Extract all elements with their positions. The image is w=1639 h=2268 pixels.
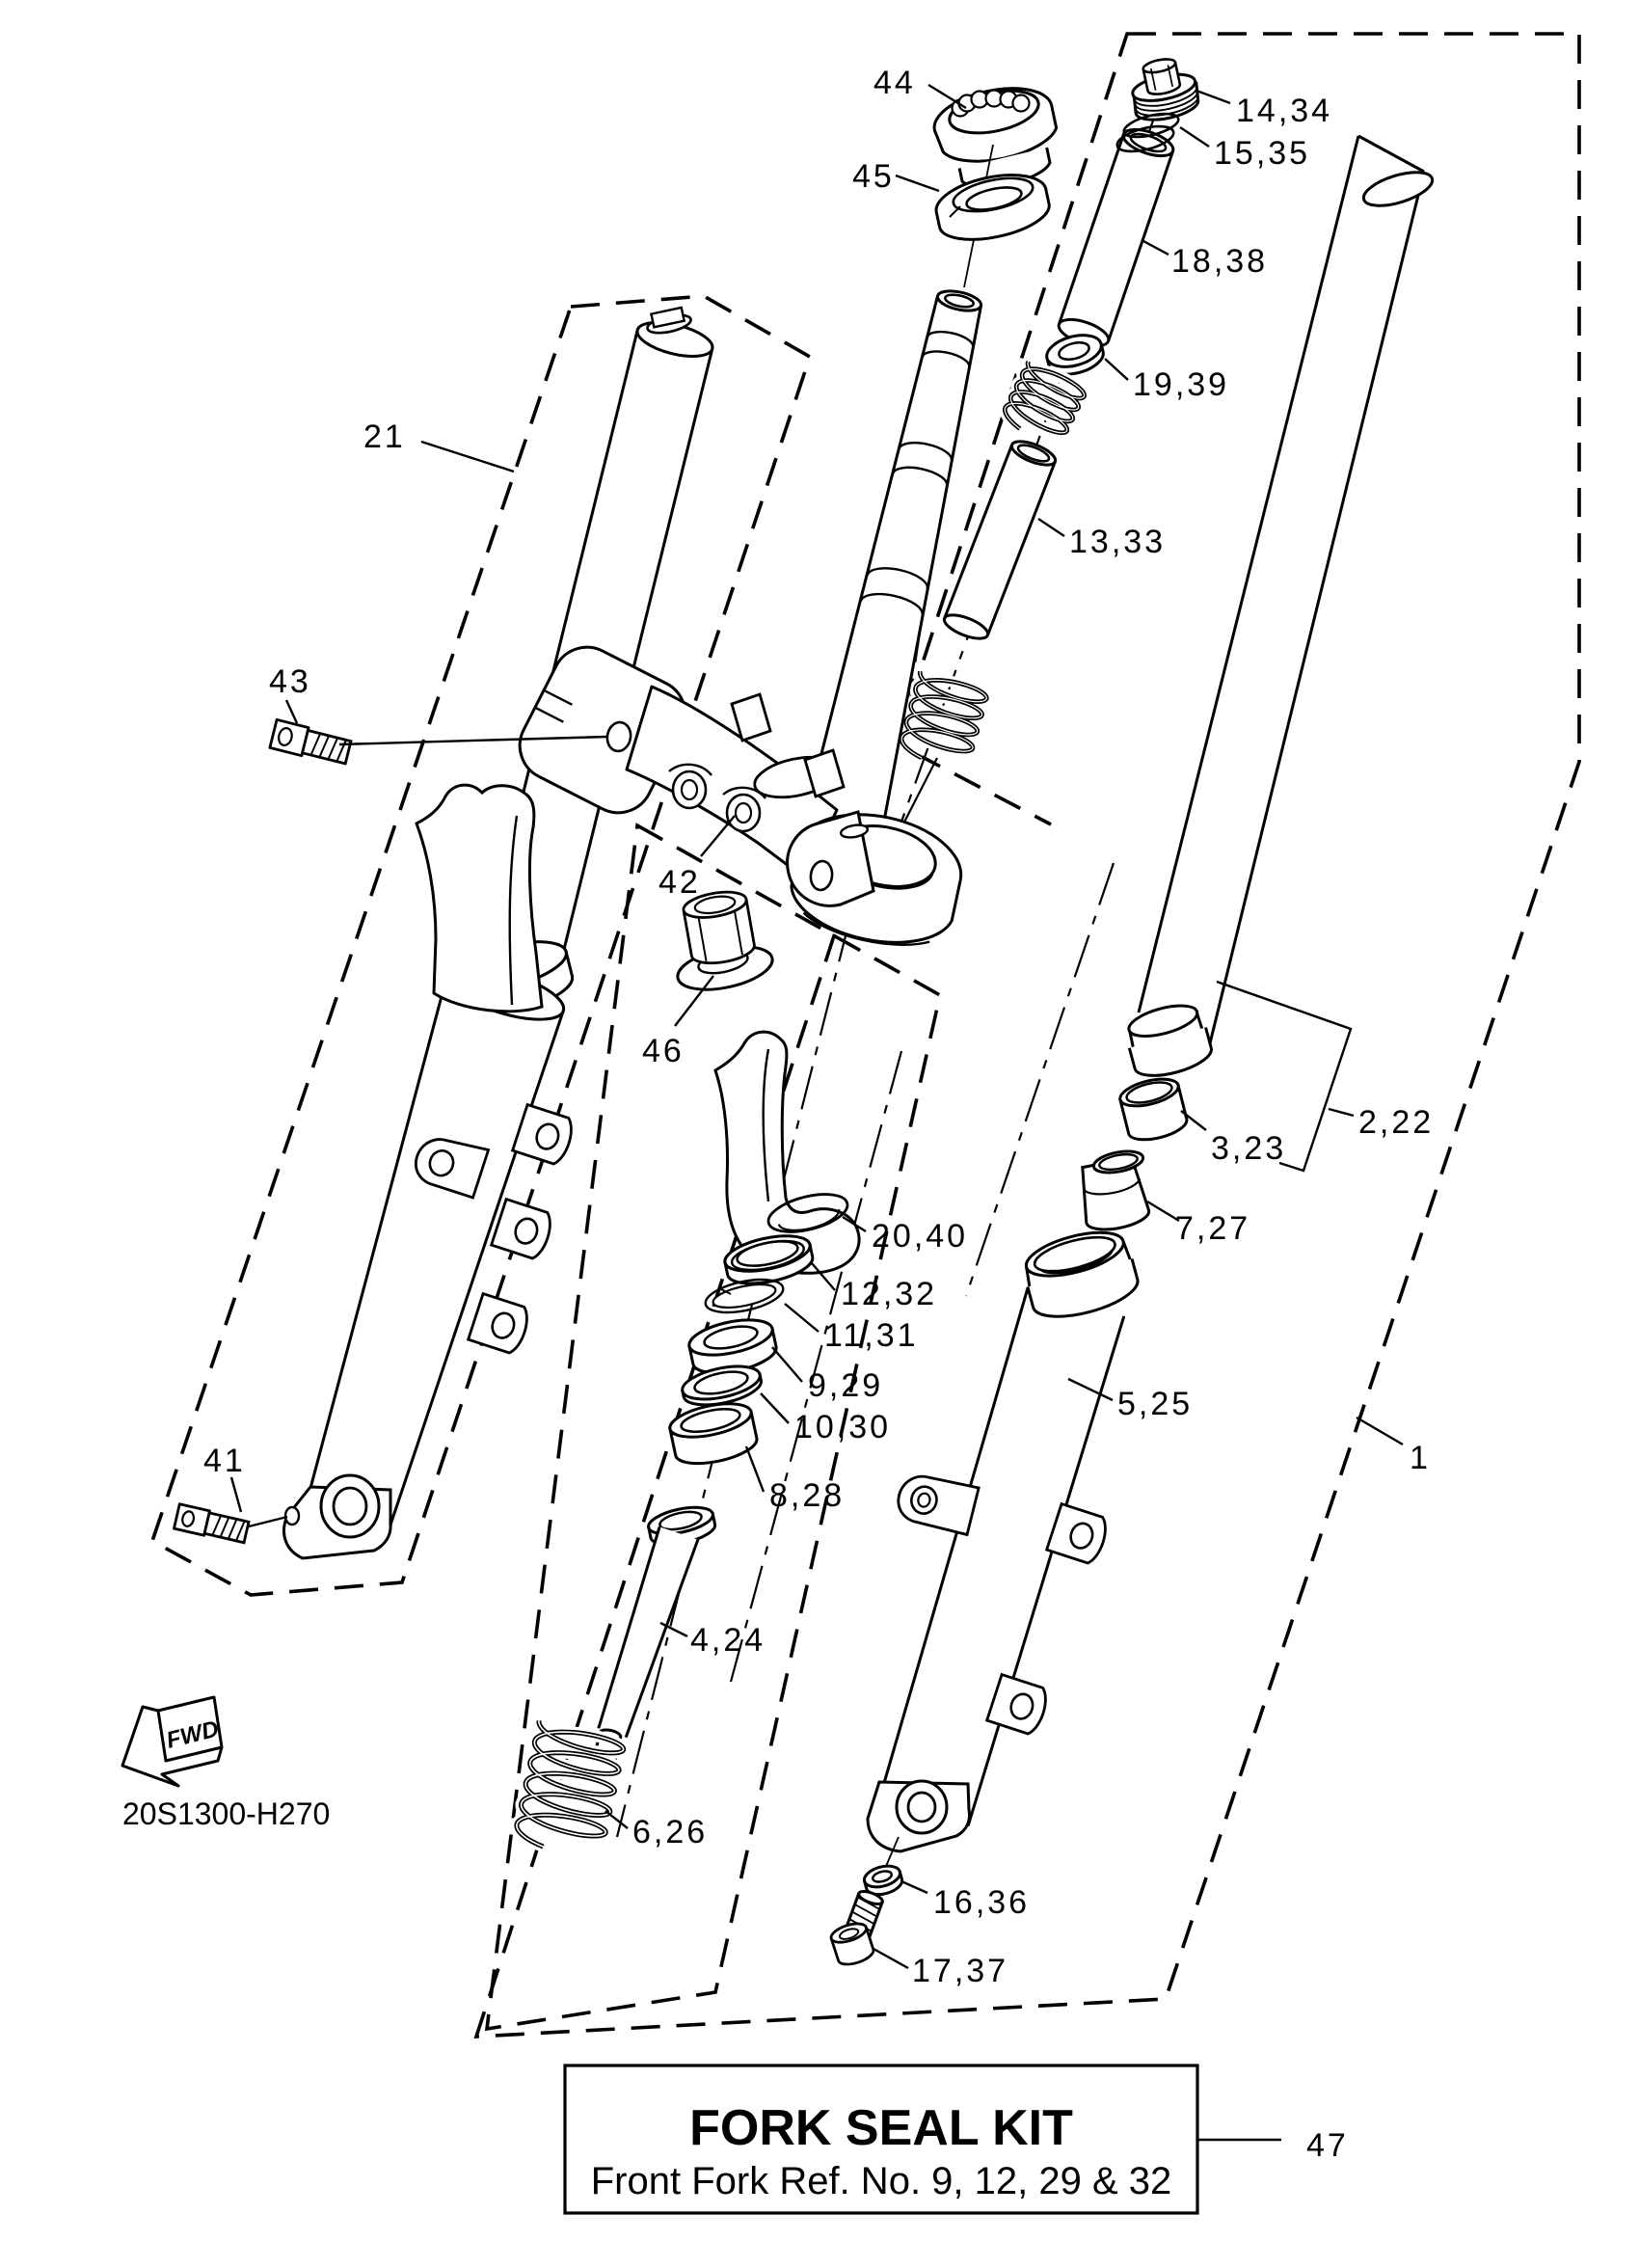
svg-text:11,31: 11,31: [824, 1317, 919, 1354]
svg-text:17,37: 17,37: [912, 1953, 1008, 1989]
svg-text:9,29: 9,29: [808, 1367, 883, 1404]
svg-text:16,36: 16,36: [933, 1884, 1030, 1921]
svg-text:42: 42: [658, 864, 701, 901]
svg-text:10,30: 10,30: [794, 1409, 891, 1445]
svg-text:FORK SEAL KIT: FORK SEAL KIT: [689, 2100, 1073, 2156]
svg-text:14,34: 14,34: [1236, 93, 1332, 129]
svg-text:5,25: 5,25: [1117, 1386, 1193, 1422]
svg-text:45: 45: [852, 158, 895, 195]
svg-text:2,22: 2,22: [1358, 1104, 1434, 1141]
svg-text:Front Fork Ref. No. 9, 12, 29: Front Fork Ref. No. 9, 12, 29 & 32: [591, 2160, 1172, 2202]
svg-text:7,27: 7,27: [1175, 1210, 1250, 1247]
svg-text:15,35: 15,35: [1214, 135, 1310, 172]
svg-text:20,40: 20,40: [872, 1218, 968, 1255]
svg-text:46: 46: [642, 1033, 685, 1069]
svg-text:6,26: 6,26: [632, 1814, 708, 1850]
svg-text:3,23: 3,23: [1211, 1130, 1286, 1167]
svg-text:13,33: 13,33: [1069, 524, 1166, 560]
svg-text:8,28: 8,28: [769, 1477, 845, 1514]
svg-text:47: 47: [1306, 2127, 1349, 2164]
svg-text:44: 44: [873, 65, 916, 101]
svg-text:12,32: 12,32: [841, 1276, 937, 1312]
svg-text:19,39: 19,39: [1133, 366, 1229, 403]
svg-text:20S1300-H270: 20S1300-H270: [122, 1796, 330, 1831]
svg-text:1: 1: [1410, 1440, 1431, 1476]
svg-text:43: 43: [269, 663, 311, 700]
svg-text:41: 41: [203, 1443, 246, 1479]
svg-text:21: 21: [363, 418, 406, 455]
svg-text:18,38: 18,38: [1171, 243, 1268, 280]
svg-text:4,24: 4,24: [690, 1622, 766, 1659]
